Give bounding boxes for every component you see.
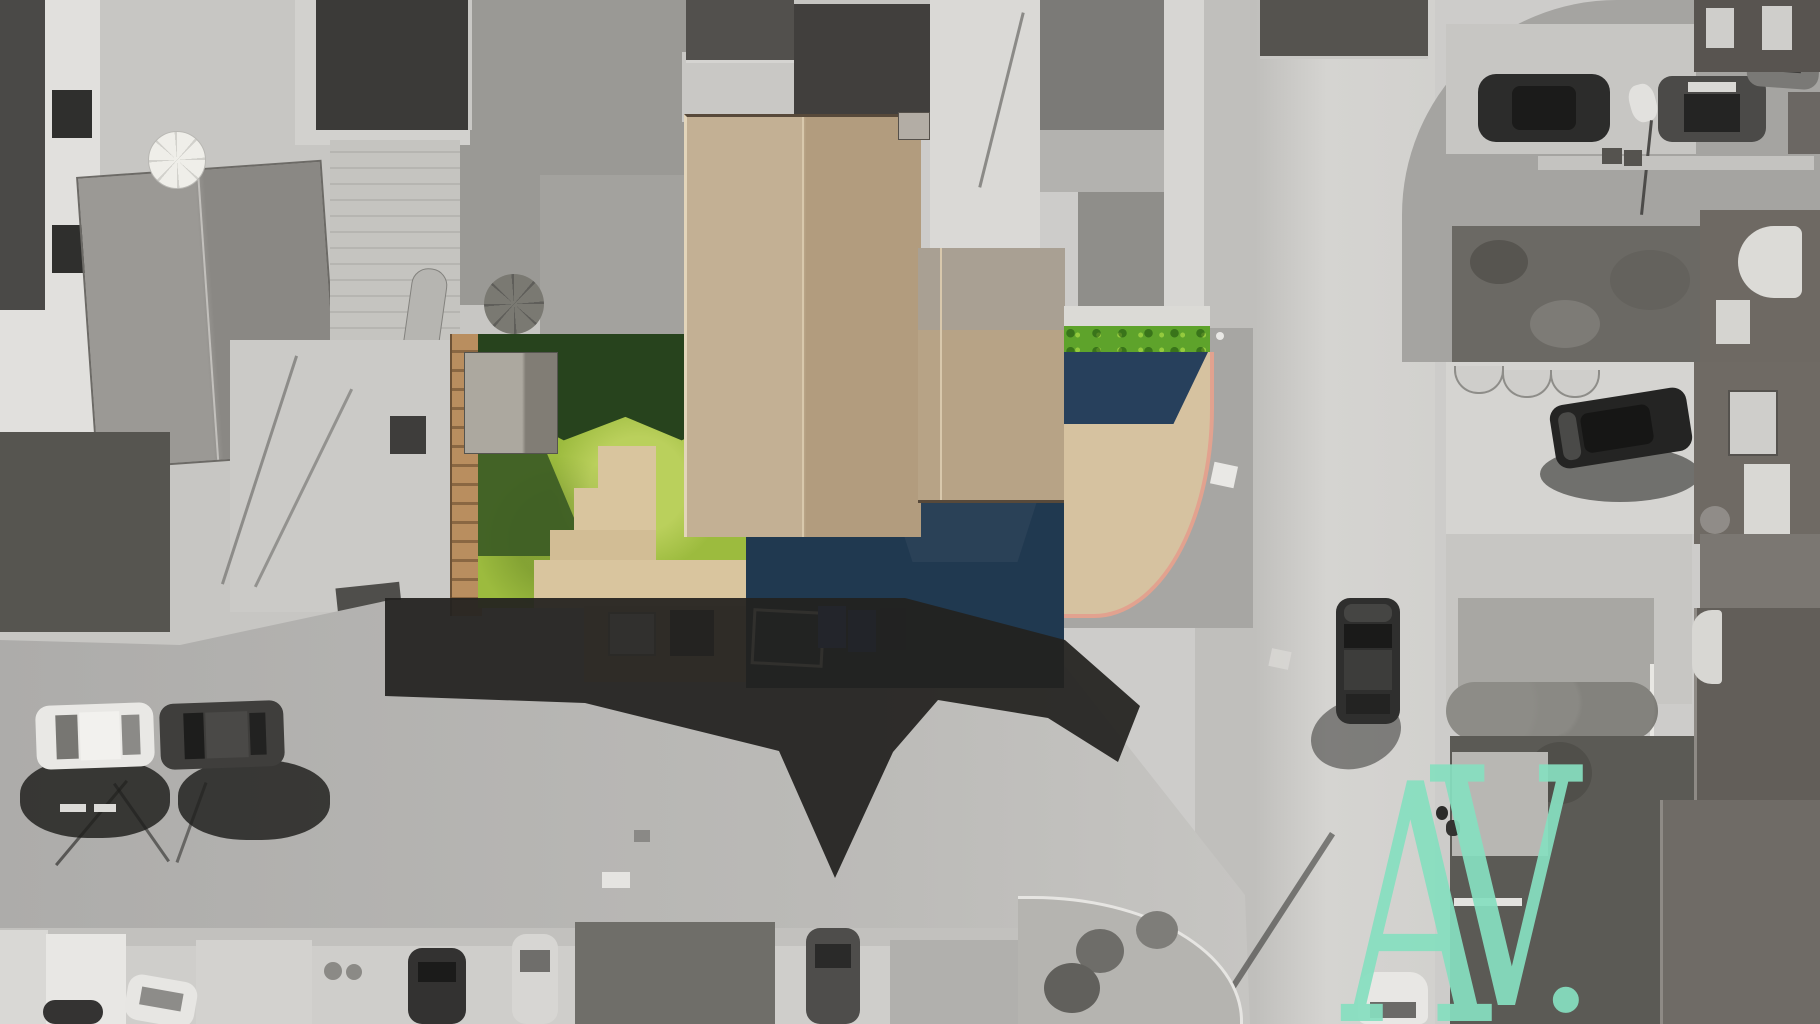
hedge-wall [1064, 306, 1210, 328]
parked-car-bottom [806, 928, 860, 1024]
driving-car [1336, 598, 1400, 724]
car-glass [1370, 1002, 1416, 1018]
bin [1602, 148, 1622, 164]
car-shadow [20, 758, 170, 838]
gabled-roof-right [1660, 800, 1820, 1024]
road-dash [94, 804, 116, 812]
driving-car-white [1358, 972, 1428, 1024]
window [1728, 390, 1778, 456]
patio-step [550, 530, 656, 562]
car-glass [139, 987, 183, 1012]
white-fence-bar [1454, 898, 1522, 906]
white-parasol-icon [148, 131, 206, 189]
car-glass [1579, 403, 1654, 453]
bush [1530, 300, 1600, 348]
car-glass [1346, 694, 1390, 714]
green-hedge [1064, 326, 1210, 354]
manhole [634, 830, 650, 842]
driveway-slab [196, 940, 312, 1024]
garden-shed [464, 352, 558, 454]
pedestrian-pram [1446, 820, 1460, 836]
car-bonnet [1344, 604, 1392, 622]
dark-building-left [0, 0, 45, 310]
barn-building [794, 0, 932, 118]
main-house-roof [684, 114, 921, 537]
bin [1624, 150, 1642, 166]
bush [1610, 250, 1690, 310]
roof-ridge [196, 170, 218, 459]
brick-frontage [890, 940, 1022, 1024]
parked-car-bottom [408, 948, 466, 1024]
window [1716, 300, 1750, 344]
window [1706, 8, 1734, 48]
roof-ridge [940, 248, 942, 500]
window [1762, 6, 1792, 50]
parked-suv [1478, 74, 1610, 142]
dark-parasol-icon [484, 274, 544, 334]
planter-barrel [1700, 506, 1730, 534]
garden-bin [390, 416, 426, 454]
front-garden [575, 922, 775, 1024]
hedge-band-top [1260, 0, 1428, 59]
road-marking [1210, 462, 1238, 489]
bush [1470, 240, 1528, 284]
parked-car-right [1658, 76, 1766, 142]
car-glass [121, 714, 140, 755]
car-roof [1344, 650, 1392, 690]
aerial-photo-canvas: A V . [0, 0, 1820, 1024]
patio-step [598, 446, 656, 488]
bush [1044, 963, 1100, 1013]
car-glass [1684, 94, 1740, 132]
chimney [898, 112, 930, 140]
garden-dark-left [0, 432, 170, 632]
car-glass [520, 950, 550, 972]
low-wall [1538, 156, 1814, 170]
wing-roof [918, 248, 1065, 503]
patio-step [574, 488, 656, 530]
car-highlight [1557, 411, 1582, 461]
curb-band [0, 928, 1020, 948]
gravel-patch [1458, 598, 1654, 690]
car-roof [79, 711, 121, 760]
building-edge [1788, 92, 1820, 154]
parked-car-dark [159, 700, 285, 770]
rock-garden [540, 175, 700, 345]
window [52, 90, 92, 138]
road-dot [1216, 332, 1224, 340]
road-dash [60, 804, 86, 812]
parked-car-bottom-gray [512, 934, 558, 1024]
bush [1136, 911, 1178, 949]
curved-bay-window [1692, 610, 1722, 684]
parked-car-bottom [43, 1000, 103, 1024]
car-roof [205, 711, 249, 758]
garage-roof-pale [0, 930, 48, 1024]
car-roof [1688, 82, 1736, 92]
white-door [1744, 464, 1790, 534]
sidewalk-strip [1164, 0, 1204, 335]
bay-window [1738, 226, 1802, 298]
bin [324, 962, 342, 980]
car-glass [249, 712, 266, 755]
pebble-garden [1452, 752, 1548, 856]
car-glass [815, 944, 851, 968]
road-marking [1268, 648, 1291, 670]
solar-panel-roof [316, 0, 472, 130]
car-glass [418, 962, 456, 982]
car-glass [183, 713, 205, 760]
bin [346, 964, 362, 980]
road-marking [602, 872, 630, 888]
car-glass [1512, 86, 1576, 130]
gable-roof-top [686, 0, 796, 63]
pedestrian [1436, 806, 1448, 820]
hedge-caterpillar [1446, 682, 1658, 740]
roof-ridge [802, 117, 804, 537]
car-glass [55, 715, 79, 760]
car-glass [1344, 624, 1392, 648]
parked-car-white [35, 702, 155, 770]
